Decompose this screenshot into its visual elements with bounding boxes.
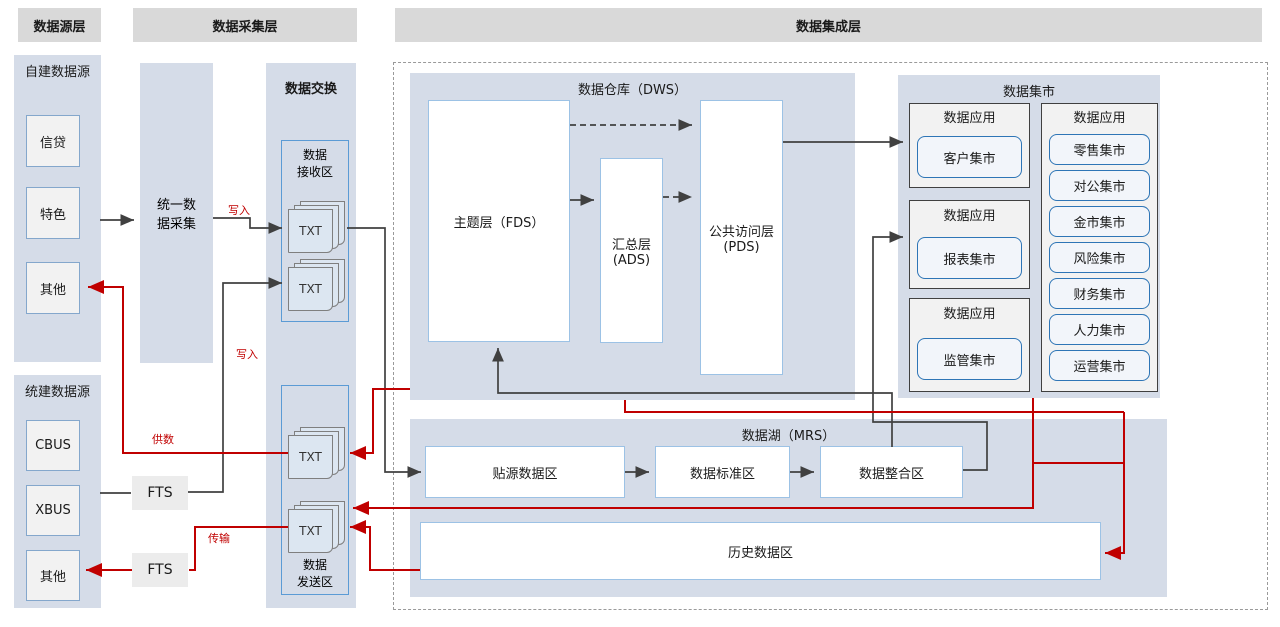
pds-public-access-layer-node: 公共访问层 (PDS) — [700, 100, 783, 375]
header-collection-layer: 数据采集层 — [133, 8, 357, 42]
txt-file-label: TXT — [288, 509, 333, 553]
data-mart-title: 数据集市 — [898, 81, 1160, 99]
header-source-layer: 数据源层 — [18, 8, 101, 42]
txt-file-stack-icon: TXT — [288, 427, 348, 480]
edge-label-write-1: 写入 — [228, 202, 250, 218]
txt-file-label: TXT — [288, 209, 333, 253]
txt-file-stack-icon: TXT — [288, 501, 348, 554]
edge-label-write-2: 写入 — [236, 346, 258, 362]
data-app-title-3: 数据应用 — [909, 303, 1030, 321]
lake-node-history: 历史数据区 — [420, 522, 1101, 580]
mart-node-retail: 零售集市 — [1049, 134, 1150, 165]
source-node-other-unified: 其他 — [26, 550, 80, 601]
data-send-zone-title: 数据 发送区 — [281, 556, 349, 590]
mart-node-finance: 财务集市 — [1049, 278, 1150, 309]
source-node-cbus: CBUS — [26, 420, 80, 471]
edge-label-supply: 供数 — [152, 431, 174, 447]
lake-node-integration: 数据整合区 — [820, 446, 963, 498]
source-node-other-self: 其他 — [26, 262, 80, 314]
mart-node-customer: 客户集市 — [917, 136, 1022, 178]
architecture-diagram: 数据源层 数据采集层 数据集成层 自建数据源 信贷 特色 其他 统建数据源 CB… — [0, 0, 1280, 627]
mart-node-operations: 运营集市 — [1049, 350, 1150, 381]
data-exchange-title: 数据交换 — [266, 78, 356, 96]
mart-node-regulatory: 监管集市 — [917, 338, 1022, 380]
mart-node-risk: 风险集市 — [1049, 242, 1150, 273]
source-node-featured: 特色 — [26, 187, 80, 239]
fts-node-2: FTS — [132, 553, 188, 587]
txt-file-stack-icon: TXT — [288, 259, 348, 312]
lake-node-standard: 数据标准区 — [655, 446, 790, 498]
mart-node-financial-market: 金市集市 — [1049, 206, 1150, 237]
unified-built-source-title: 统建数据源 — [14, 381, 101, 399]
mart-node-hr: 人力集市 — [1049, 314, 1150, 345]
mart-node-corporate: 对公集市 — [1049, 170, 1150, 201]
source-node-xbus: XBUS — [26, 485, 80, 536]
fts-node-1: FTS — [132, 476, 188, 510]
self-built-source-title: 自建数据源 — [14, 61, 101, 79]
lake-node-source-pasted: 贴源数据区 — [425, 446, 625, 498]
data-app-title-1: 数据应用 — [909, 107, 1030, 125]
data-warehouse-title: 数据仓库（DWS） — [410, 79, 855, 97]
source-node-credit: 信贷 — [26, 115, 80, 167]
txt-file-label: TXT — [288, 435, 333, 479]
unified-data-collection-node: 统一数 据采集 — [140, 63, 213, 363]
ads-summary-layer-node: 汇总层 (ADS) — [600, 158, 663, 343]
data-lake-title: 数据湖（MRS） — [410, 425, 1167, 443]
data-receive-zone-title: 数据 接收区 — [281, 146, 349, 180]
header-integration-layer: 数据集成层 — [395, 8, 1262, 42]
txt-file-label: TXT — [288, 267, 333, 311]
data-app-title-4: 数据应用 — [1041, 107, 1158, 125]
data-app-title-2: 数据应用 — [909, 205, 1030, 223]
mart-node-report: 报表集市 — [917, 237, 1022, 279]
fds-subject-layer-node: 主题层（FDS） — [428, 100, 570, 342]
txt-file-stack-icon: TXT — [288, 201, 348, 254]
edge-label-transfer: 传输 — [208, 530, 230, 546]
